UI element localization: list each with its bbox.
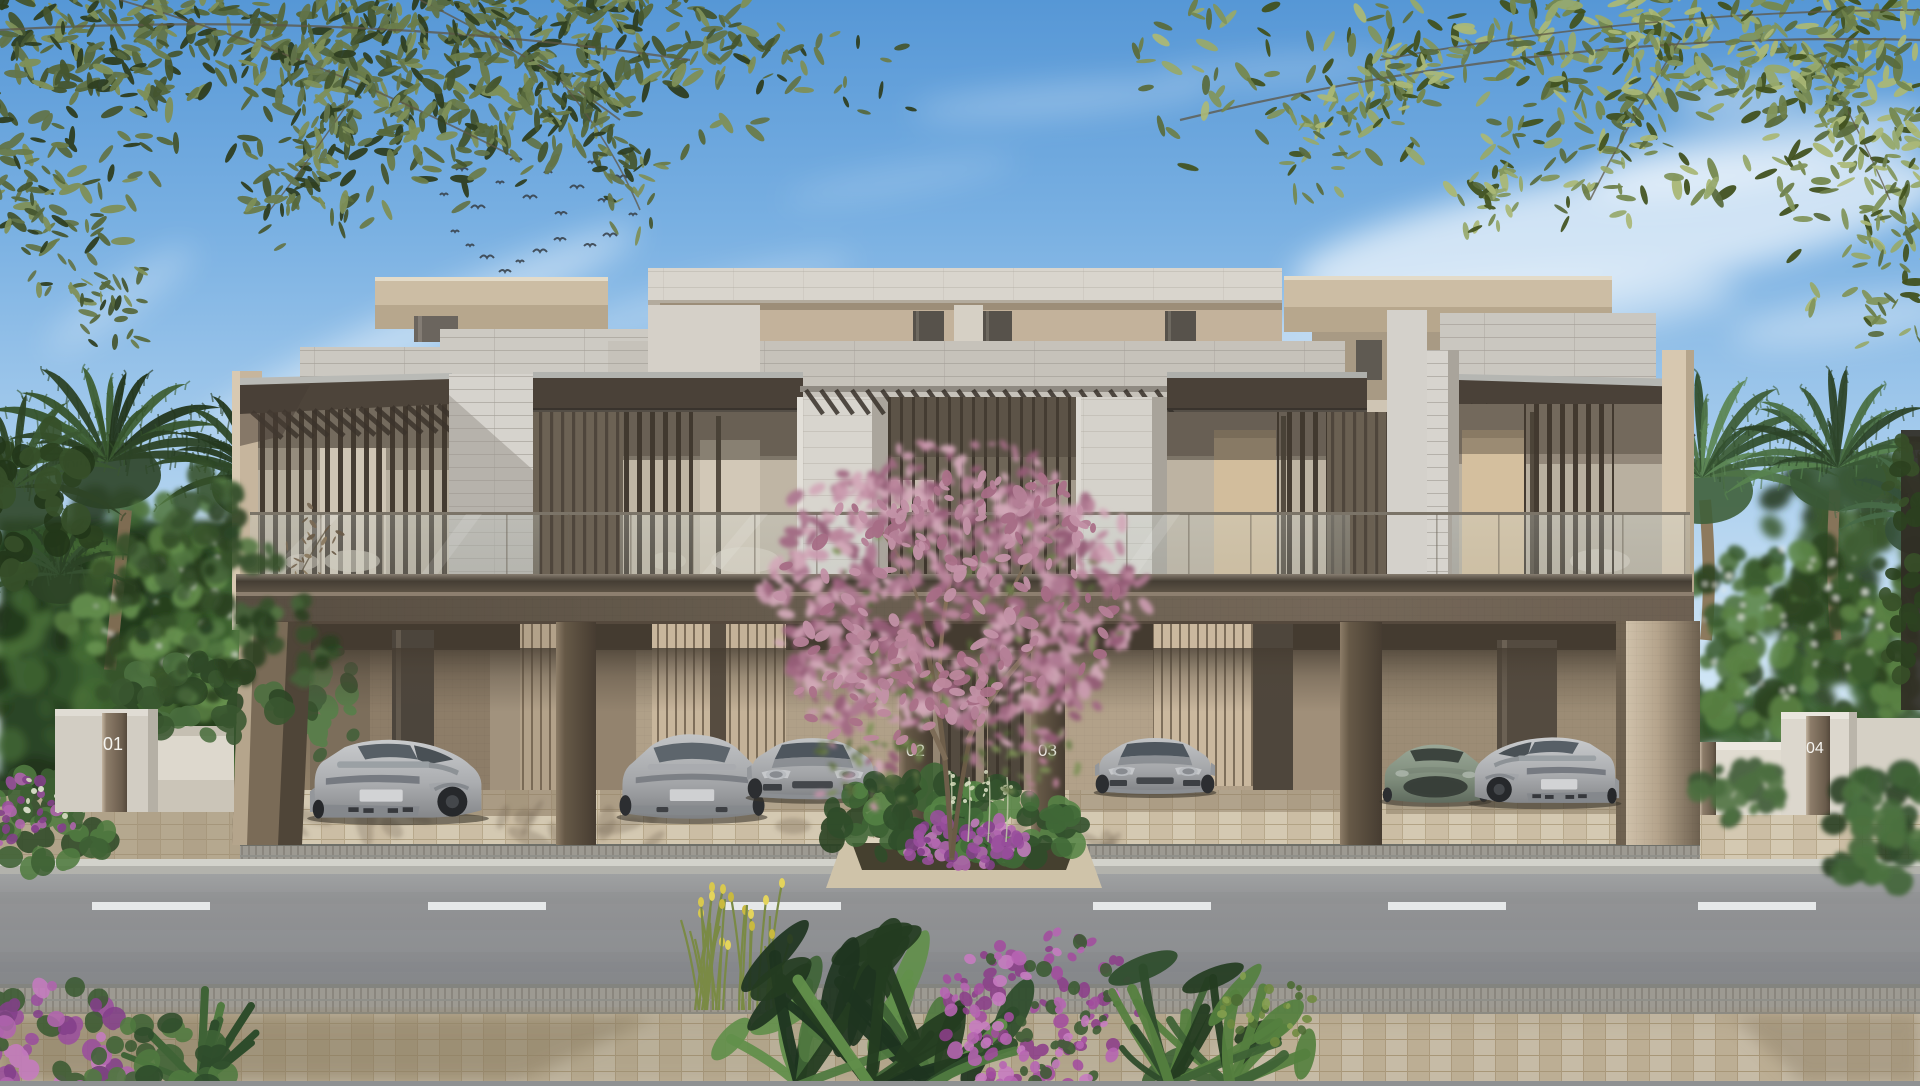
svg-text:01: 01 [103, 734, 123, 754]
svg-text:04: 04 [1806, 740, 1824, 757]
